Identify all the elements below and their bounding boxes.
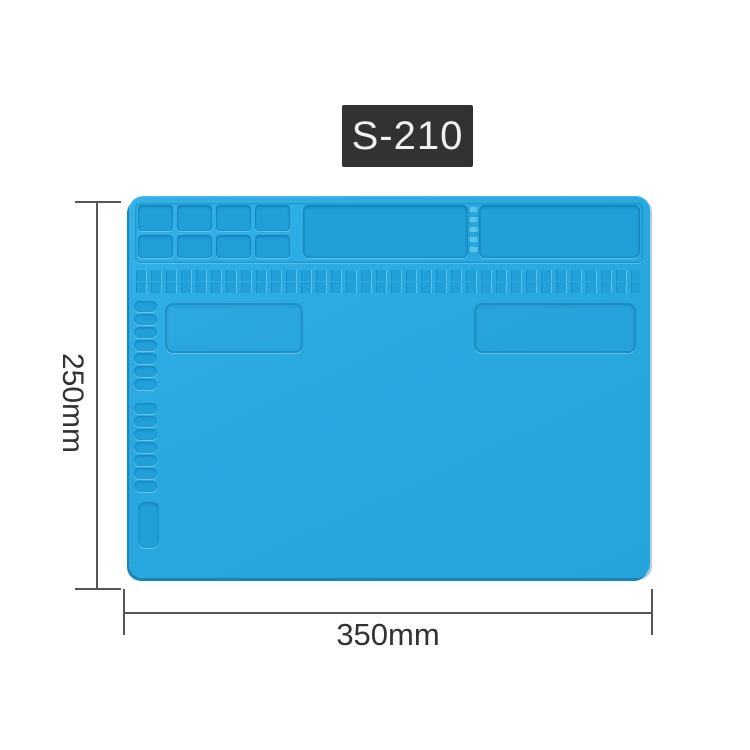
long-side-slot: [138, 502, 159, 548]
parts-compartment: [138, 205, 173, 231]
soldering-mat: [129, 196, 650, 578]
parts-compartment: [138, 235, 173, 258]
height-dimension-cap-bottom: [75, 588, 121, 590]
tray-right: [479, 205, 640, 258]
tray-divider-notches: [469, 207, 478, 256]
mini-compartment-row: [136, 282, 640, 293]
side-slot: [134, 442, 157, 453]
recessed-area-left: [165, 303, 303, 353]
side-slot: [134, 416, 157, 427]
side-slot: [134, 403, 157, 414]
side-slot: [134, 301, 157, 312]
recessed-area-right: [474, 303, 636, 353]
parts-compartment: [255, 235, 290, 258]
height-dimension-line: [96, 202, 98, 589]
side-slot: [134, 468, 157, 479]
side-slot: [134, 455, 157, 466]
parts-compartment: [177, 235, 212, 258]
mini-compartment-row: [136, 270, 640, 281]
height-dimension-label: 250mm: [55, 353, 89, 453]
side-slot: [134, 327, 157, 338]
side-slot: [134, 429, 157, 440]
side-slot: [134, 366, 157, 377]
parts-compartment: [177, 205, 212, 231]
side-slot-group: [134, 301, 157, 390]
parts-compartment: [216, 235, 251, 258]
tray-left: [303, 205, 468, 258]
parts-compartment-grid: [138, 205, 290, 258]
model-badge: S-210: [342, 105, 473, 167]
width-dimension-label: 350mm: [336, 617, 439, 653]
side-slot-group: [134, 403, 157, 492]
mat-top-compartment-section: [135, 203, 643, 263]
width-dimension-line: [124, 612, 652, 614]
width-dimension-tick-left: [123, 589, 125, 635]
side-slot: [134, 340, 157, 351]
parts-compartment: [216, 205, 251, 231]
model-label: S-210: [352, 114, 464, 159]
height-dimension-cap-top: [75, 201, 121, 203]
width-dimension-tick-right: [651, 589, 653, 635]
side-slot: [134, 379, 157, 390]
side-slot: [134, 353, 157, 364]
side-slot: [134, 314, 157, 325]
parts-compartment: [255, 205, 290, 231]
side-slot: [134, 481, 157, 492]
product-diagram: S-210: [0, 0, 750, 750]
